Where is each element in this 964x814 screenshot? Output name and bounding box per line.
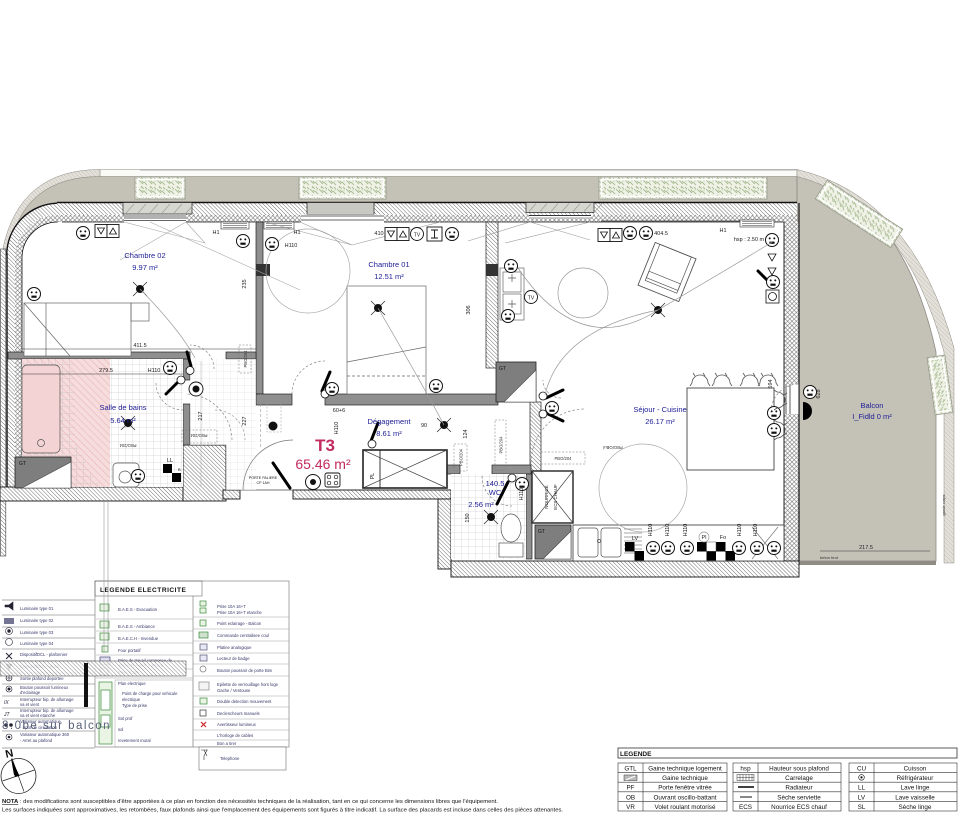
svg-text:Séjour - Cuisine: Séjour - Cuisine <box>633 405 686 414</box>
svg-text:Luminaire type 04: Luminaire type 04 <box>20 641 54 646</box>
svg-text:OB: OB <box>626 794 635 801</box>
svg-text:CP 1AH: CP 1AH <box>257 481 270 485</box>
svg-text:SL: SL <box>858 804 866 811</box>
svg-text:Bouton poussoir de porte Bim: Bouton poussoir de porte Bim <box>217 668 273 673</box>
svg-text:I_Fidld 0 m²: I_Fidld 0 m² <box>852 412 892 421</box>
svg-text:PF: PF <box>626 785 634 792</box>
svg-text:LL: LL <box>167 458 173 464</box>
svg-text:NOURRICE: NOURRICE <box>544 485 549 508</box>
svg-text:H110: H110 <box>285 243 298 249</box>
svg-text:Lave linge: Lave linge <box>901 785 930 792</box>
svg-text:Prise 10A 16+T etanche: Prise 10A 16+T etanche <box>217 610 262 615</box>
svg-text:217.5: 217.5 <box>859 545 873 551</box>
svg-text:H110: H110 <box>753 524 759 537</box>
svg-text:Gache / Ventouse: Gache / Ventouse <box>217 688 251 693</box>
svg-text:Gaine technique: Gaine technique <box>662 775 708 782</box>
svg-text:628: 628 <box>816 389 822 398</box>
svg-text:Les surfaces indiquées sont ap: Les surfaces indiquées sont approximativ… <box>2 808 563 814</box>
svg-text:NOTA : des modifications sont: NOTA : des modifications sont susceptibl… <box>2 799 498 805</box>
svg-text:H110: H110 <box>519 488 525 501</box>
svg-text:Telephone: Telephone <box>220 756 240 761</box>
svg-text:Chambre 02: Chambre 02 <box>124 251 165 260</box>
svg-text:Carrelage: Carrelage <box>785 775 813 782</box>
svg-text:Réfrigérateur: Réfrigérateur <box>897 775 934 782</box>
svg-text:Avertisseur lumineux: Avertisseur lumineux <box>217 722 257 727</box>
svg-text:26.17 m²: 26.17 m² <box>645 417 675 426</box>
svg-text:8.0be sur balcon: 8.0be sur balcon <box>2 720 111 732</box>
svg-text:Sèche linge: Sèche linge <box>899 804 932 811</box>
svg-text:LV: LV <box>632 536 639 542</box>
svg-text:Lecteur de badge: Lecteur de badge <box>217 656 250 661</box>
svg-text:235: 235 <box>242 279 248 288</box>
svg-text:Luminaire type 03: Luminaire type 03 <box>20 630 54 635</box>
svg-text:PBO/204: PBO/204 <box>459 448 464 466</box>
svg-text:404.5: 404.5 <box>654 231 668 237</box>
svg-text:LL: LL <box>858 785 866 792</box>
svg-text:ECS: ECS <box>739 804 752 811</box>
svg-text:594: 594 <box>768 379 774 388</box>
svg-text:H110: H110 <box>665 524 671 537</box>
svg-text:Declencheurs manuels: Declencheurs manuels <box>217 711 260 716</box>
svg-text:Luminaire type 01: Luminaire type 01 <box>20 606 54 611</box>
svg-text:Epilette de verrouillage hors: Epilette de verrouillage hors loge <box>217 682 279 687</box>
svg-text:H1: H1 <box>719 228 726 234</box>
svg-text:306: 306 <box>466 305 472 314</box>
svg-text:beton brut: beton brut <box>820 555 839 560</box>
svg-text:- Arret au plafond: - Arret au plafond <box>20 738 53 743</box>
svg-text:Volet roulant motorisé: Volet roulant motorisé <box>655 804 716 811</box>
svg-text:Balcon: Balcon <box>861 401 884 410</box>
svg-text:va et vient etanche: va et vient etanche <box>20 713 56 718</box>
svg-text:150: 150 <box>465 513 471 522</box>
svg-text:PBO/204: PBO/204 <box>243 350 248 368</box>
svg-text:sol: sol <box>118 727 123 732</box>
svg-text:227: 227 <box>242 416 248 425</box>
svg-text:PL: PL <box>370 473 376 479</box>
svg-text:Chambre 01: Chambre 01 <box>368 260 409 269</box>
svg-text:GT: GT <box>19 461 26 467</box>
svg-text:Ouvrant oscillo-battant: Ouvrant oscillo-battant <box>654 794 717 801</box>
svg-text:90: 90 <box>421 423 427 429</box>
svg-text:VR: VR <box>626 804 635 811</box>
svg-text:d'eclairage: d'eclairage <box>20 690 41 695</box>
svg-text:H110: H110 <box>648 524 654 537</box>
svg-text:Sol prof: Sol prof <box>118 716 133 721</box>
svg-text:JT: JT <box>3 712 11 718</box>
svg-text:Sortie plafond deportee: Sortie plafond deportee <box>20 676 64 681</box>
svg-text:Bon a tirer: Bon a tirer <box>217 741 237 746</box>
svg-text:hsp : 2.50 m: hsp : 2.50 m <box>734 237 765 243</box>
svg-text:Four portatif: Four portatif <box>118 648 141 653</box>
svg-text:Variateur automatique 360: Variateur automatique 360 <box>20 732 70 737</box>
svg-text:B: B <box>178 467 181 472</box>
svg-text:Commande centralisee coul: Commande centralisee coul <box>217 633 269 638</box>
svg-text:WC: WC <box>489 488 502 497</box>
svg-text:DispositifDCL - plafonnier: DispositifDCL - plafonnier <box>20 652 68 657</box>
svg-text:CU: CU <box>857 766 867 773</box>
svg-text:garde corps: garde corps <box>941 494 946 515</box>
svg-text:PBO/OBul: PBO/OBul <box>603 445 622 450</box>
svg-text:Point de charge pour vehicule: Point de charge pour vehicule <box>122 691 178 696</box>
svg-text:GT: GT <box>538 529 545 535</box>
svg-text:Plan electrique: Plan electrique <box>118 681 146 686</box>
svg-text:Point eclairage - Balcon: Point eclairage - Balcon <box>217 621 262 626</box>
svg-text:PORTE PALIERE: PORTE PALIERE <box>249 476 278 480</box>
svg-text:Luminaire type 02: Luminaire type 02 <box>20 618 54 623</box>
svg-text:L'horloge de cables: L'horloge de cables <box>217 733 253 738</box>
svg-text:hsp: hsp <box>740 766 751 773</box>
svg-text:ECS CHAUF: ECS CHAUF <box>553 484 558 510</box>
svg-text:PBO/204: PBO/204 <box>499 436 504 454</box>
svg-text:Porte fenêtre vitrée: Porte fenêtre vitrée <box>658 785 712 792</box>
svg-text:Nourrice ECS chauf: Nourrice ECS chauf <box>771 804 827 811</box>
svg-text:124: 124 <box>463 429 469 438</box>
svg-text:Gaine technique logement: Gaine technique logement <box>648 766 722 773</box>
svg-text:Lave vaisselle: Lave vaisselle <box>895 794 935 801</box>
svg-text:8.61 m²: 8.61 m² <box>376 429 402 438</box>
svg-text:va et vient: va et vient <box>20 702 40 707</box>
svg-text:2.56 m²: 2.56 m² <box>468 500 494 509</box>
svg-text:Double detection mouvement: Double detection mouvement <box>217 699 272 704</box>
svg-text:electrique: electrique <box>122 697 141 702</box>
svg-text:Type de prise: Type de prise <box>122 703 148 708</box>
svg-text:Salle de bains: Salle de bains <box>99 403 146 412</box>
svg-text:LEGENDE: LEGENDE <box>620 751 652 758</box>
svg-text:B.A.E.S - Ambiance: B.A.E.S - Ambiance <box>118 624 155 629</box>
svg-text:GT: GT <box>499 366 506 372</box>
svg-text:revetement mural: revetement mural <box>118 738 151 743</box>
svg-text:PBO/204: PBO/204 <box>119 443 137 448</box>
svg-text:Radiateur: Radiateur <box>785 785 812 792</box>
svg-text:Cuisson: Cuisson <box>904 766 927 773</box>
svg-text:65.46 m²: 65.46 m² <box>295 456 351 472</box>
svg-text:140.5: 140.5 <box>486 479 505 488</box>
svg-text:B.A.E.C.H - Invendue: B.A.E.C.H - Invendue <box>118 636 159 641</box>
svg-text:279.5: 279.5 <box>99 368 113 374</box>
svg-text:PBO/204: PBO/204 <box>555 456 573 461</box>
svg-text:Prise 10A 16+T: Prise 10A 16+T <box>217 604 246 609</box>
svg-text:5.64 m²: 5.64 m² <box>110 416 136 425</box>
svg-text:H110: H110 <box>683 524 689 537</box>
svg-text:Pl: Pl <box>702 535 707 541</box>
svg-text:H110: H110 <box>148 368 161 374</box>
svg-text:Fo: Fo <box>720 535 726 541</box>
svg-text:H110: H110 <box>334 422 340 435</box>
svg-text:Sèche serviette: Sèche serviette <box>777 794 821 801</box>
svg-text:H110: H110 <box>737 524 743 537</box>
svg-text:411.5: 411.5 <box>133 343 146 349</box>
svg-text:T3: T3 <box>315 436 335 455</box>
svg-text:60+6: 60+6 <box>333 408 345 414</box>
svg-text:Dégagement: Dégagement <box>368 417 412 426</box>
svg-text:410: 410 <box>374 231 383 237</box>
svg-text:IX: IX <box>4 700 9 706</box>
svg-text:12.51 m²: 12.51 m² <box>374 272 404 281</box>
svg-text:LEGENDE ELECTRICITE: LEGENDE ELECTRICITE <box>100 587 187 594</box>
svg-text:H1: H1 <box>293 230 300 236</box>
svg-text:LV: LV <box>858 794 866 801</box>
svg-text:Hauteur sous plafond: Hauteur sous plafond <box>769 766 829 773</box>
svg-text:PBO/204: PBO/204 <box>190 433 208 438</box>
svg-text:217: 217 <box>198 411 204 420</box>
svg-text:TV: TV <box>414 233 421 239</box>
svg-text:TV: TV <box>528 296 535 302</box>
svg-text:H1: H1 <box>212 230 219 236</box>
svg-text:GTL: GTL <box>624 766 637 773</box>
svg-text:B.A.E.S - Evacuation: B.A.E.S - Evacuation <box>118 607 158 612</box>
svg-text:9.97 m²: 9.97 m² <box>132 263 158 272</box>
svg-text:Platine analogique: Platine analogique <box>217 645 252 650</box>
